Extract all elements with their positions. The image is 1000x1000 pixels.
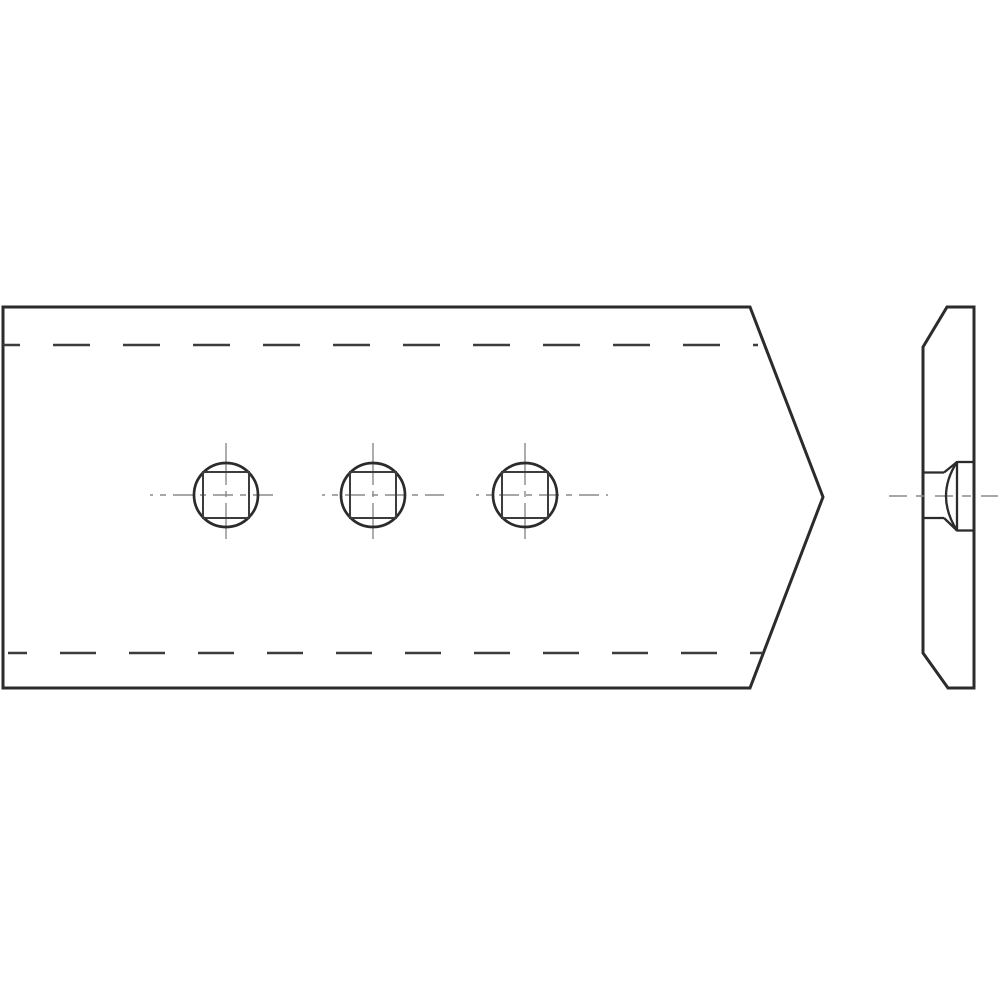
engineering-drawing — [0, 0, 1000, 1000]
drawing-canvas — [0, 0, 1000, 1000]
side-view — [889, 307, 998, 688]
front-view — [3, 307, 823, 688]
side-view-outline — [923, 307, 974, 688]
front-view-outline — [3, 307, 823, 688]
